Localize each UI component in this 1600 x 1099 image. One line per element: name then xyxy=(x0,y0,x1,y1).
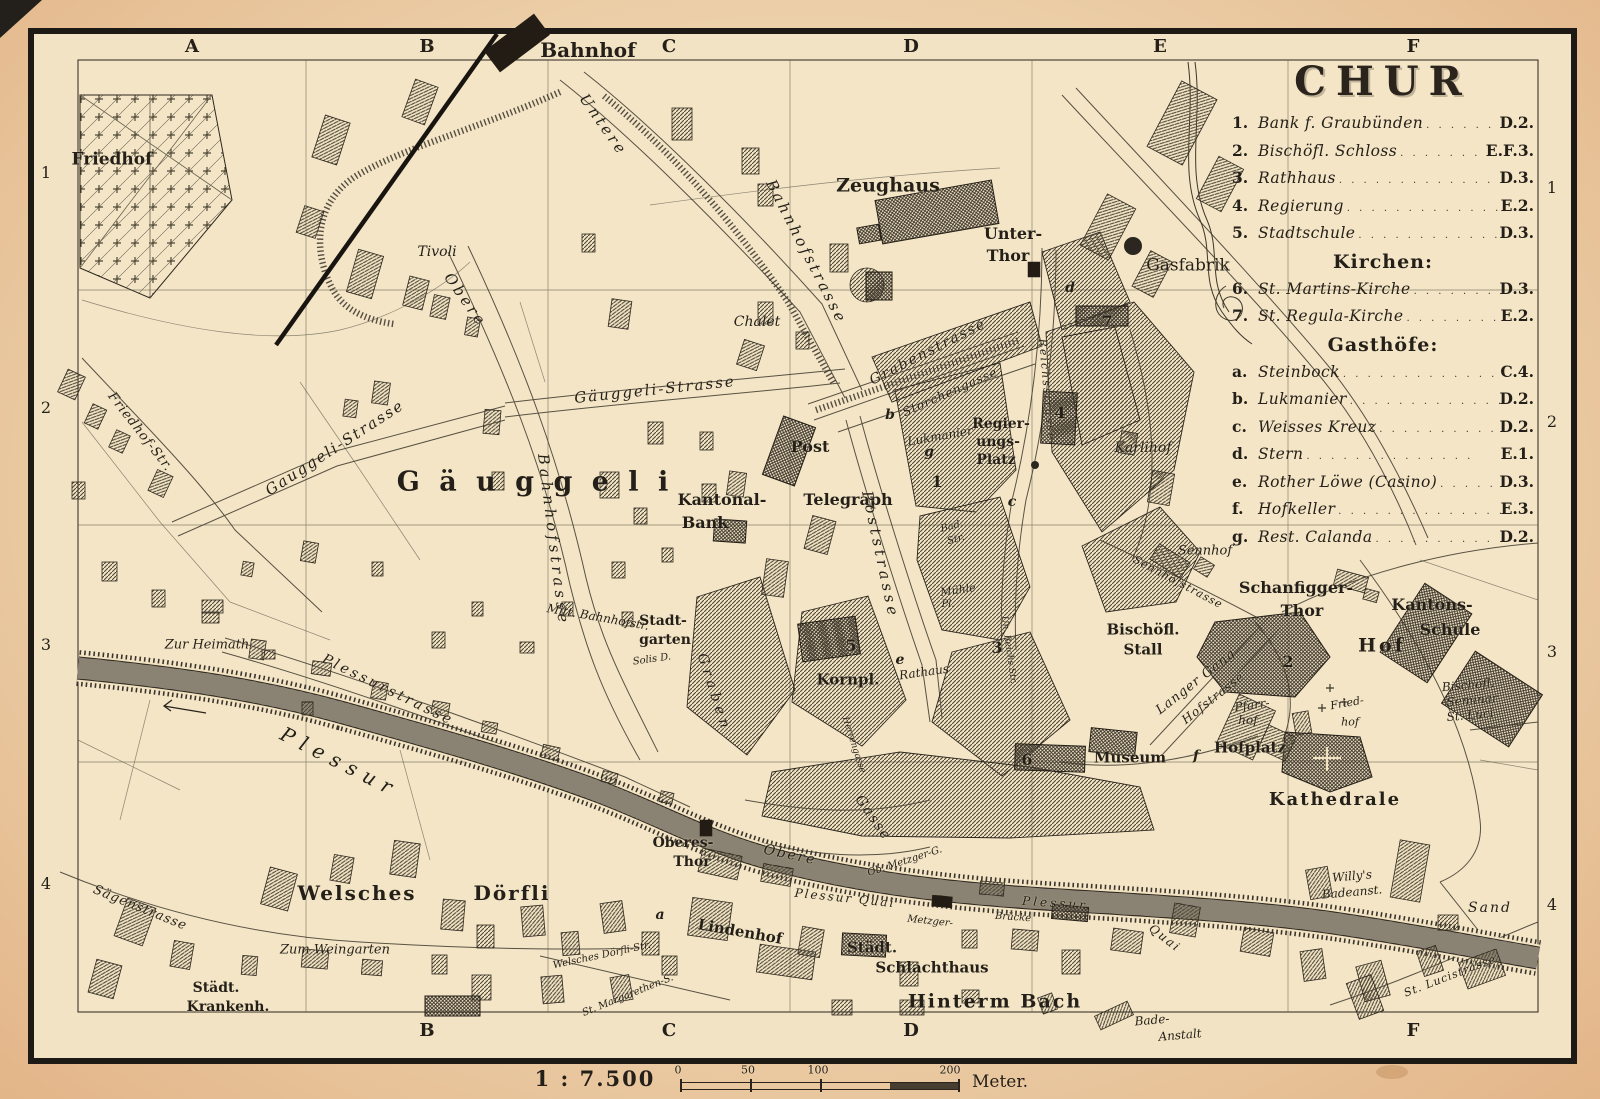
building xyxy=(962,930,977,948)
building xyxy=(1300,949,1326,982)
building xyxy=(1028,262,1040,277)
building xyxy=(152,590,165,607)
legend-dotted-leader: . . . . . . . . . . . . . . xyxy=(1355,230,1499,241)
building xyxy=(541,975,564,1004)
building xyxy=(979,881,1004,896)
building xyxy=(962,990,979,1003)
legend-item-key: 5. xyxy=(1232,223,1258,242)
legend: CHUR 1.Bank f. Graubünden. . . . . . . .… xyxy=(1232,58,1534,554)
building xyxy=(610,975,633,1003)
building xyxy=(932,895,953,908)
legend-item-gridref: D.3. xyxy=(1500,168,1534,187)
legend-item-gridref: D.3. xyxy=(1500,279,1534,298)
building xyxy=(832,1000,852,1015)
legend-item: 7.St. Regula-Kirche. . . . . . . . . . .… xyxy=(1232,306,1534,334)
building xyxy=(798,926,825,957)
building xyxy=(371,681,389,700)
scale-ratio: 1 : 7.500 xyxy=(530,1066,660,1091)
building xyxy=(700,820,712,836)
legend-item-gridref: E.2. xyxy=(1501,306,1534,325)
building xyxy=(1015,744,1086,772)
building xyxy=(465,317,481,337)
legend-dotted-leader: . . . . . . . . . . . . . . xyxy=(1397,148,1486,159)
building xyxy=(481,721,498,734)
building xyxy=(758,302,773,324)
legend-item: f.Hofkeller. . . . . . . . . . . . . .E.… xyxy=(1232,499,1534,527)
legend-dotted-leader: . . . . . . . . . . . . . . xyxy=(1373,534,1500,545)
scale-unit: Meter. xyxy=(972,1072,1028,1092)
building xyxy=(170,940,194,969)
legend-item-name: Stadtschule xyxy=(1258,224,1355,242)
legend-item-key: 1. xyxy=(1232,113,1258,132)
fountain-dot xyxy=(1031,461,1039,469)
legend-item: g.Rest. Calanda. . . . . . . . . . . . .… xyxy=(1232,527,1534,555)
legend-item-gridref: D.2. xyxy=(1500,389,1534,408)
legend-item-gridref: D.3. xyxy=(1500,223,1534,242)
building xyxy=(1041,391,1078,445)
building xyxy=(102,562,117,581)
legend-item-key: 4. xyxy=(1232,196,1258,215)
building xyxy=(1111,928,1144,954)
building xyxy=(1089,728,1137,757)
building xyxy=(688,897,733,940)
building xyxy=(600,472,619,498)
building xyxy=(1306,866,1333,899)
legend-dotted-leader: . . . . . . . . . . . . . . xyxy=(1411,286,1500,297)
legend-item-gridref: E.1. xyxy=(1501,444,1534,463)
building xyxy=(758,184,773,206)
legend-item-name: Rest. Calanda xyxy=(1258,528,1373,546)
legend-item-name: Bischöfl. Schloss xyxy=(1258,142,1397,160)
building xyxy=(1062,950,1080,974)
building xyxy=(472,602,483,616)
building xyxy=(612,562,625,578)
legend-item-gridref: D.2. xyxy=(1500,527,1534,546)
legend-dotted-leader: . . . . . . . . . . . . . . xyxy=(1347,396,1500,407)
legend-item: 2.Bischöfl. Schloss. . . . . . . . . . .… xyxy=(1232,141,1534,169)
legend-dotted-leader: . . . . . . . . . . . . . . xyxy=(1344,203,1501,214)
building xyxy=(202,612,219,623)
building xyxy=(648,422,663,444)
building xyxy=(483,409,501,434)
building xyxy=(300,541,318,563)
building xyxy=(713,519,746,543)
legend-item-name: St. Regula-Kirche xyxy=(1258,307,1403,325)
building xyxy=(249,639,266,660)
building xyxy=(1076,306,1128,326)
building xyxy=(311,661,332,677)
legend-item: 4.Regierung. . . . . . . . . . . . . .E.… xyxy=(1232,196,1534,224)
building xyxy=(622,612,633,626)
legend-dotted-leader: . . . . . . . . . . . . . . xyxy=(1376,424,1499,435)
building xyxy=(302,702,313,715)
building xyxy=(662,548,673,562)
scale-tick xyxy=(750,1079,752,1092)
building xyxy=(330,854,354,883)
legend-item-key: d. xyxy=(1232,444,1258,463)
legend-item-key: 7. xyxy=(1232,306,1258,325)
legend-dotted-leader: . . . . . . . . . . . . . . xyxy=(1403,313,1500,324)
legend-item-key: f. xyxy=(1232,499,1258,518)
legend-item-name: Steinbock xyxy=(1258,363,1340,381)
building xyxy=(241,561,254,577)
building xyxy=(520,642,534,653)
building xyxy=(72,482,85,499)
building xyxy=(900,962,918,986)
building xyxy=(798,616,861,662)
building xyxy=(372,562,383,576)
legend-item-gridref: D.2. xyxy=(1500,113,1534,132)
legend-item: 3.Rathhaus. . . . . . . . . . . . . .D.3… xyxy=(1232,168,1534,196)
legend-item: 1.Bank f. Graubünden. . . . . . . . . . … xyxy=(1232,113,1534,141)
legend-item-name: Hofkeller xyxy=(1258,500,1335,518)
scale-bar-filled-segment xyxy=(890,1083,960,1089)
legend-item-gridref: D.3. xyxy=(1500,472,1534,491)
building xyxy=(866,272,892,300)
building xyxy=(1051,904,1088,921)
legend-item: 5.Stadtschule. . . . . . . . . . . . . .… xyxy=(1232,223,1534,251)
legend-item-key: 3. xyxy=(1232,168,1258,187)
legend-item-name: Bank f. Graubünden xyxy=(1258,114,1423,132)
legend-item-key: b. xyxy=(1232,389,1258,408)
building xyxy=(361,959,382,976)
legend-item-key: 6. xyxy=(1232,279,1258,298)
building xyxy=(600,901,626,934)
legend-item-key: 2. xyxy=(1232,141,1258,160)
legend-item-name: Rathhaus xyxy=(1258,169,1336,187)
building xyxy=(431,701,450,717)
building xyxy=(830,244,848,272)
building xyxy=(1240,928,1274,957)
legend-item-key: a. xyxy=(1232,362,1258,381)
legend-item-gridref: C.4. xyxy=(1500,362,1534,381)
paper-stain xyxy=(1376,1065,1408,1079)
legend-section-header: Kirchen: xyxy=(1232,251,1534,279)
building xyxy=(702,484,716,502)
scale-tick xyxy=(958,1079,960,1092)
legend-dotted-leader: . . . . . . . . . . . . . . xyxy=(1303,451,1500,462)
building xyxy=(841,933,886,957)
building xyxy=(1118,431,1138,455)
chur-map-page: FriedhofBahnhofTivoliUntereBahnhofstrass… xyxy=(0,0,1600,1099)
building xyxy=(562,602,573,616)
building xyxy=(561,931,580,955)
building xyxy=(432,955,447,974)
legend-item: e.Rother Löwe (Casino). . . . . . . . . … xyxy=(1232,472,1534,500)
scale-tick xyxy=(680,1079,682,1092)
building xyxy=(672,108,692,140)
building xyxy=(492,472,504,490)
legend-item-name: Lukmanier xyxy=(1258,390,1347,408)
legend-item-gridref: D.2. xyxy=(1500,417,1534,436)
building xyxy=(1011,929,1039,951)
legend-dotted-leader: . . . . . . . . . . . . . . xyxy=(1340,369,1500,380)
building xyxy=(202,600,223,613)
building xyxy=(608,299,632,330)
legend-item-name: St. Martins-Kirche xyxy=(1258,280,1411,298)
legend-item: b.Lukmanier. . . . . . . . . . . . . .D.… xyxy=(1232,389,1534,417)
building xyxy=(634,508,647,524)
building xyxy=(521,905,546,937)
building xyxy=(700,432,713,450)
legend-item-key: g. xyxy=(1232,527,1258,546)
scale-tick xyxy=(820,1079,822,1092)
legend-item: a.Steinbock. . . . . . . . . . . . . .C.… xyxy=(1232,362,1534,390)
building xyxy=(742,148,759,174)
building xyxy=(301,949,328,969)
legend-item: c.Weisses Kreuz. . . . . . . . . . . . .… xyxy=(1232,417,1534,445)
map-title: CHUR xyxy=(1232,58,1534,105)
legend-item-name: Rother Löwe (Casino) xyxy=(1258,473,1437,491)
legend-dotted-leader: . . . . . . . . . . . . . . xyxy=(1423,120,1499,131)
building xyxy=(1438,915,1458,930)
building xyxy=(582,234,595,252)
building xyxy=(857,224,881,244)
building xyxy=(1170,903,1201,937)
building xyxy=(432,632,445,648)
building xyxy=(659,791,674,804)
legend-item: 6.St. Martins-Kirche. . . . . . . . . . … xyxy=(1232,279,1534,307)
scale-bar xyxy=(680,1082,960,1090)
building xyxy=(441,899,466,931)
building xyxy=(425,996,480,1016)
legend-item-name: Weisses Kreuz xyxy=(1258,418,1376,436)
building xyxy=(642,932,659,955)
legend-rows: 1.Bank f. Graubünden. . . . . . . . . . … xyxy=(1232,113,1534,554)
building xyxy=(900,1000,924,1015)
legend-dotted-leader: . . . . . . . . . . . . . . xyxy=(1335,506,1500,517)
legend-item-key: c. xyxy=(1232,417,1258,436)
building xyxy=(726,471,746,497)
building xyxy=(1292,711,1312,735)
legend-item-name: Regierung xyxy=(1258,197,1344,215)
legend-item-gridref: E.3. xyxy=(1501,499,1534,518)
building xyxy=(762,559,789,598)
legend-item-gridref: E.F.3. xyxy=(1486,141,1534,160)
building xyxy=(796,332,809,349)
legend-dotted-leader: . . . . . . . . . . . . . . xyxy=(1437,479,1499,490)
building xyxy=(241,955,258,975)
legend-item: d.Stern. . . . . . . . . . . . . .E.1. xyxy=(1232,444,1534,472)
building xyxy=(390,840,420,877)
legend-item-key: e. xyxy=(1232,472,1258,491)
building xyxy=(662,956,677,975)
building xyxy=(372,381,391,405)
legend-item-gridref: E.2. xyxy=(1501,196,1534,215)
legend-dotted-leader: . . . . . . . . . . . . . . xyxy=(1336,175,1500,186)
legend-item-name: Stern xyxy=(1258,445,1303,463)
gasometer-icon xyxy=(1124,237,1142,255)
building xyxy=(343,399,358,418)
legend-section-header: Gasthöfe: xyxy=(1232,334,1534,362)
building xyxy=(477,925,494,948)
